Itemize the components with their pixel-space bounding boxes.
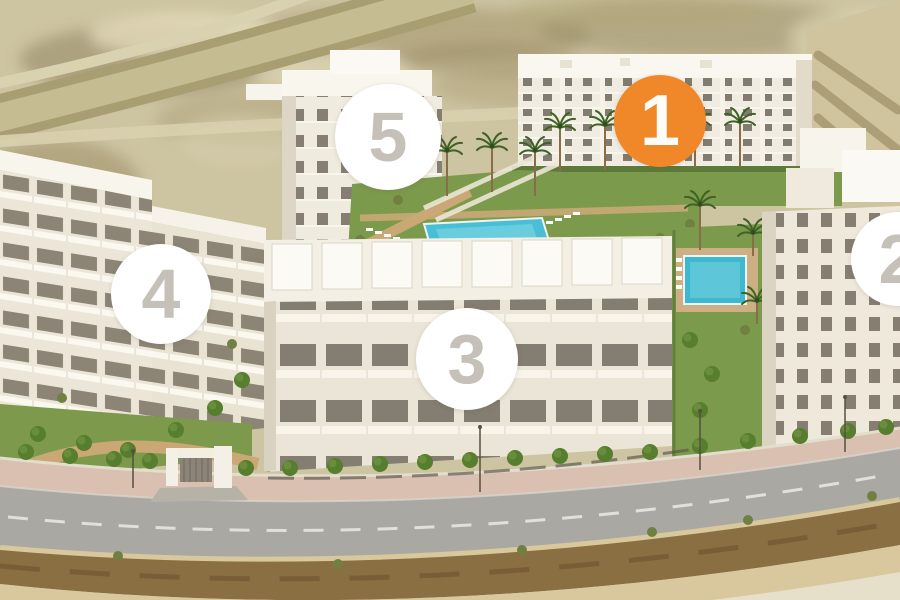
right-garden: [672, 191, 772, 466]
phase-marker-1-label: 1: [640, 85, 680, 157]
phase-marker-1[interactable]: 1: [614, 75, 706, 167]
phase-marker-3-label: 3: [448, 324, 487, 394]
phase-marker-2-label: 2: [879, 224, 900, 294]
site-plan-render: 1 2 3 4 5: [0, 0, 900, 600]
phase-marker-5-label: 5: [369, 102, 408, 172]
phase-marker-3[interactable]: 3: [416, 308, 518, 410]
phase-marker-4-label: 4: [142, 259, 181, 329]
pool-2: [684, 256, 746, 304]
phase-marker-4[interactable]: 4: [111, 244, 211, 344]
phase-marker-5[interactable]: 5: [335, 84, 441, 190]
